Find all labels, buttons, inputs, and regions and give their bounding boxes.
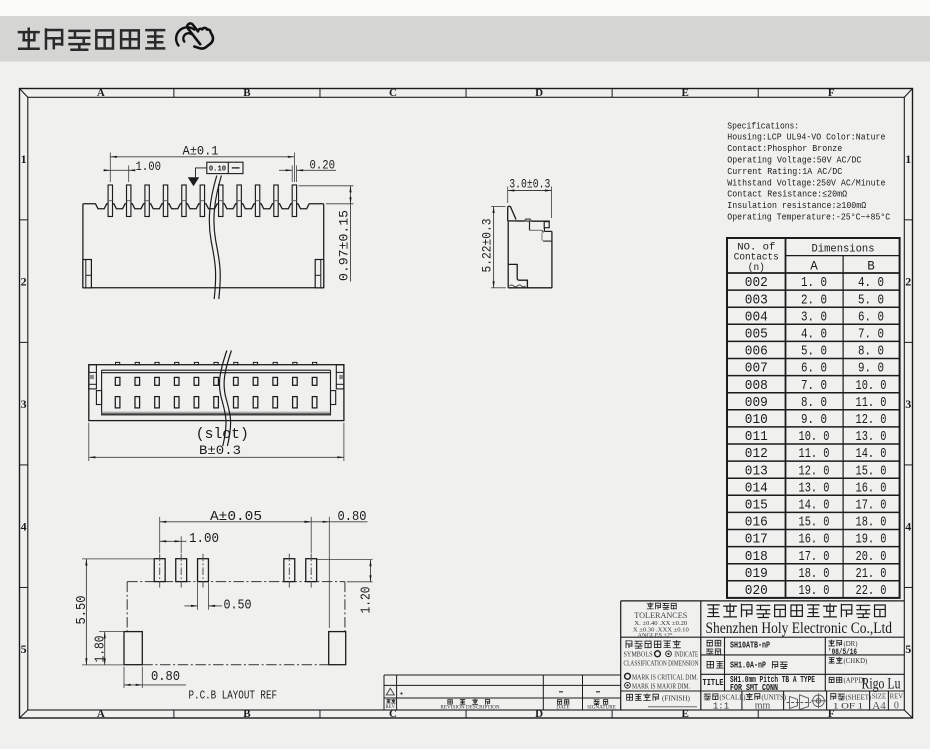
svg-text:Insulation resistance:≥100mΩ: Insulation resistance:≥100mΩ <box>727 200 866 211</box>
svg-text:B±0.3: B±0.3 <box>199 443 241 458</box>
svg-text:1 OF 1: 1 OF 1 <box>833 700 863 710</box>
svg-text:5.50: 5.50 <box>75 596 90 625</box>
svg-text:8. 0: 8. 0 <box>858 344 884 360</box>
svg-text:1.00: 1.00 <box>189 532 219 547</box>
svg-text:MARK IS MAJOR DIM.: MARK IS MAJOR DIM. <box>632 682 690 690</box>
svg-text:P.C.B LAYOUT REF: P.C.B LAYOUT REF <box>189 689 278 703</box>
svg-text:A±0.1: A±0.1 <box>183 144 219 159</box>
svg-text:(CHKD): (CHKD) <box>844 658 868 665</box>
svg-text:17. 0: 17. 0 <box>856 498 887 514</box>
svg-text:013: 013 <box>745 463 768 479</box>
svg-text:4: 4 <box>905 519 911 533</box>
svg-text:7. 0: 7. 0 <box>858 327 884 343</box>
svg-text:4: 4 <box>21 519 27 533</box>
svg-text:15. 0: 15. 0 <box>856 463 887 479</box>
svg-text:10. 0: 10. 0 <box>799 429 830 445</box>
svg-text:18. 0: 18. 0 <box>856 515 887 531</box>
svg-text:2: 2 <box>905 274 911 288</box>
svg-text:E: E <box>682 708 689 720</box>
svg-text:004: 004 <box>745 309 768 325</box>
svg-text:11. 0: 11. 0 <box>856 395 887 411</box>
svg-text:003: 003 <box>745 292 768 308</box>
svg-text:002: 002 <box>745 275 768 291</box>
svg-text:4. 0: 4. 0 <box>801 327 827 343</box>
svg-text:(FINISH): (FINISH) <box>662 695 691 703</box>
svg-text:A: A <box>97 708 105 720</box>
svg-text:DATE: DATE <box>556 705 569 711</box>
svg-text:TOLERANCES: TOLERANCES <box>634 611 688 620</box>
svg-text:011: 011 <box>745 429 768 445</box>
svg-text:019: 019 <box>745 566 768 582</box>
svg-text:SYMBOLS: SYMBOLS <box>624 651 653 659</box>
svg-text:Current Rating:1A AC/DC: Current Rating:1A AC/DC <box>727 166 842 177</box>
svg-text:1: 1 <box>21 152 27 166</box>
svg-text:19. 0: 19. 0 <box>856 532 887 548</box>
svg-text:5. 0: 5. 0 <box>858 292 884 308</box>
svg-text:22. 0: 22. 0 <box>856 583 887 599</box>
svg-text:6. 0: 6. 0 <box>858 309 884 325</box>
svg-text:020: 020 <box>745 583 768 599</box>
svg-text:B: B <box>867 260 875 274</box>
svg-text:1.00: 1.00 <box>136 159 162 174</box>
svg-text:TITLE: TITLE <box>703 677 724 688</box>
svg-text:16. 0: 16. 0 <box>799 532 830 548</box>
svg-text:6. 0: 6. 0 <box>801 361 827 377</box>
svg-text:mm: mm <box>755 701 771 712</box>
svg-text:B: B <box>243 708 251 720</box>
svg-text:SIGNATURE: SIGNATURE <box>587 705 616 711</box>
svg-text:1. 0: 1. 0 <box>801 275 827 291</box>
svg-text:12. 0: 12. 0 <box>799 463 830 479</box>
svg-text:5. 0: 5. 0 <box>801 344 827 360</box>
svg-text:005: 005 <box>745 327 768 343</box>
svg-text:A±0.05: A±0.05 <box>210 510 262 525</box>
svg-text:007: 007 <box>745 361 768 377</box>
svg-text:F: F <box>828 87 835 99</box>
svg-text:1: 1 <box>905 152 911 166</box>
svg-text:006: 006 <box>745 344 768 360</box>
svg-text:A: A <box>810 260 818 274</box>
svg-text:REVISION DESCRIPTION: REVISION DESCRIPTION <box>440 705 499 711</box>
svg-text:009: 009 <box>745 395 768 411</box>
svg-text:ANGLES ±2°: ANGLES ±2° <box>638 632 673 639</box>
svg-text:1:1: 1:1 <box>713 701 729 711</box>
svg-text:11. 0: 11. 0 <box>799 446 830 462</box>
svg-text:'08/5/16: '08/5/16 <box>828 649 857 657</box>
svg-text:19. 0: 19. 0 <box>799 583 830 599</box>
svg-text:17. 0: 17. 0 <box>799 549 830 565</box>
svg-text:INDICATE: INDICATE <box>674 651 698 659</box>
svg-text:A4: A4 <box>872 700 886 712</box>
svg-text:3: 3 <box>21 397 27 411</box>
svg-text:3. 0: 3. 0 <box>801 309 827 325</box>
svg-text:12. 0: 12. 0 <box>856 412 887 428</box>
svg-text:SH10ATB-nP: SH10ATB-nP <box>730 641 770 651</box>
svg-text:008: 008 <box>745 378 768 394</box>
svg-text:0.97±0.15: 0.97±0.15 <box>337 210 352 281</box>
svg-text:14. 0: 14. 0 <box>856 446 887 462</box>
svg-text:0.80: 0.80 <box>151 670 180 685</box>
svg-text:5.22±0.3: 5.22±0.3 <box>480 219 495 273</box>
svg-text:1.20: 1.20 <box>360 587 375 614</box>
svg-text:2. 0: 2. 0 <box>801 292 827 308</box>
svg-text:D: D <box>535 708 543 720</box>
svg-text:0: 0 <box>894 701 899 712</box>
svg-text:10. 0: 10. 0 <box>856 378 887 394</box>
svg-text:MARK IS CRITICAL DIM.: MARK IS CRITICAL DIM. <box>632 673 698 681</box>
svg-text:14. 0: 14. 0 <box>799 498 830 514</box>
svg-text:18. 0: 18. 0 <box>799 566 830 582</box>
svg-text:D: D <box>535 87 543 99</box>
svg-text:21. 0: 21. 0 <box>856 566 887 582</box>
svg-text:018: 018 <box>745 549 768 565</box>
svg-text:13. 0: 13. 0 <box>856 429 887 445</box>
svg-text:(n): (n) <box>748 262 765 274</box>
svg-text:9. 0: 9. 0 <box>801 412 827 428</box>
svg-text:012: 012 <box>745 446 768 462</box>
svg-text:Rigo Lu: Rigo Lu <box>862 676 901 693</box>
svg-text:015: 015 <box>745 498 768 514</box>
svg-text:C: C <box>389 87 397 99</box>
svg-text:3.0±0.3: 3.0±0.3 <box>509 177 550 192</box>
svg-text:SH1.0A-nP: SH1.0A-nP <box>730 661 766 671</box>
svg-text:E: E <box>682 87 689 99</box>
svg-text:7. 0: 7. 0 <box>801 378 827 394</box>
svg-text:Housing:LCP UL94-VO Color:Natu: Housing:LCP UL94-VO Color:Nature <box>727 132 885 143</box>
svg-text:13. 0: 13. 0 <box>799 480 830 496</box>
svg-text:5: 5 <box>21 642 27 656</box>
svg-text:Specifications:: Specifications: <box>727 120 799 131</box>
svg-text:B: B <box>243 87 251 99</box>
svg-text:2: 2 <box>21 274 27 288</box>
svg-text:5: 5 <box>905 642 911 656</box>
svg-text:0.10: 0.10 <box>209 166 226 174</box>
svg-text:(slot): (slot) <box>196 426 249 443</box>
svg-text:REV: REV <box>385 705 395 710</box>
svg-text:Operating Temperature:-25°C~+8: Operating Temperature:-25°C~+85°C <box>727 212 890 223</box>
svg-text:20. 0: 20. 0 <box>856 549 887 565</box>
svg-text:Contact Resistance:≤20mΩ: Contact Resistance:≤20mΩ <box>727 189 847 200</box>
svg-text:8. 0: 8. 0 <box>801 395 827 411</box>
svg-text:0.20: 0.20 <box>310 157 336 172</box>
svg-text:FOR SMT CONN: FOR SMT CONN <box>730 683 778 693</box>
svg-text:A: A <box>97 87 105 99</box>
svg-text:010: 010 <box>745 412 768 428</box>
svg-text:017: 017 <box>745 532 768 548</box>
svg-text:Withstand Voltage:250V AC/Minu: Withstand Voltage:250V AC/Minute <box>727 177 885 188</box>
svg-text:16. 0: 16. 0 <box>856 480 887 496</box>
svg-text:15. 0: 15. 0 <box>799 515 830 531</box>
svg-text:Operating Voltage:50V AC/DC: Operating Voltage:50V AC/DC <box>727 155 861 166</box>
svg-text:CLASSIFICATION DIMENSION: CLASSIFICATION DIMENSION <box>624 659 699 667</box>
svg-text:Contact:Phosphor Bronze: Contact:Phosphor Bronze <box>727 143 842 154</box>
svg-text:1.80: 1.80 <box>93 636 108 663</box>
svg-text:Shenzhen Holy Electronic Co.,L: Shenzhen Holy Electronic Co.,Ltd <box>706 619 893 637</box>
svg-text:0.80: 0.80 <box>338 510 367 525</box>
svg-text:Dimensions: Dimensions <box>812 244 875 256</box>
svg-text:014: 014 <box>745 480 768 496</box>
svg-text:4. 0: 4. 0 <box>858 275 884 291</box>
svg-text:3: 3 <box>905 397 911 411</box>
svg-text:9. 0: 9. 0 <box>858 361 884 377</box>
svg-text:(DR): (DR) <box>844 641 858 648</box>
svg-text:016: 016 <box>745 515 768 531</box>
svg-text:0.50: 0.50 <box>224 599 252 614</box>
